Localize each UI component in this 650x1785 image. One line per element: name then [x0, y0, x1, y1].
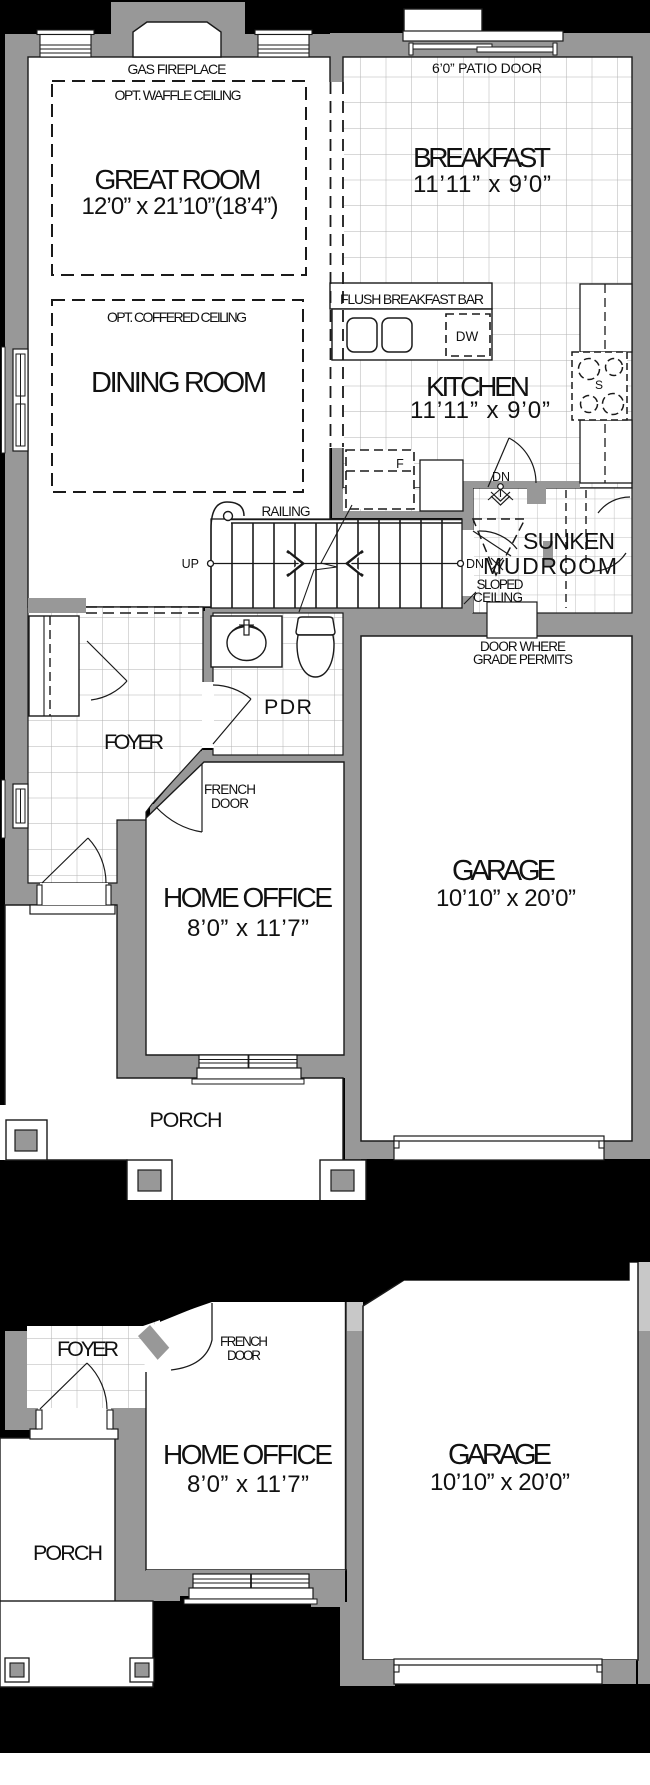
svg-text:GRADE PERMITS: GRADE PERMITS: [473, 652, 573, 667]
svg-text:HOME OFFICE: HOME OFFICE: [163, 882, 333, 913]
svg-text:F: F: [396, 457, 404, 471]
svg-text:11’11” x 9’0”: 11’11” x 9’0”: [410, 397, 550, 424]
svg-text:11’11” x 9’0”: 11’11” x 9’0”: [413, 171, 551, 198]
svg-text:PORCH: PORCH: [33, 1541, 103, 1565]
svg-text:GREAT ROOM: GREAT ROOM: [95, 164, 262, 195]
svg-text:12’0” x 21’10”(18’4”): 12’0” x 21’10”(18’4”): [82, 193, 279, 220]
svg-text:S: S: [595, 378, 603, 392]
svg-text:FOYER: FOYER: [104, 730, 164, 754]
svg-text:8’0” x 11’7”: 8’0” x 11’7”: [187, 915, 309, 942]
svg-text:SUNKEN: SUNKEN: [523, 528, 615, 554]
svg-text:BREAKFAST: BREAKFAST: [413, 142, 551, 173]
svg-text:PORCH: PORCH: [150, 1108, 223, 1132]
svg-text:DINING ROOM: DINING ROOM: [91, 367, 267, 399]
svg-text:6’0” PATIO DOOR: 6’0” PATIO DOOR: [432, 60, 542, 76]
svg-text:DN: DN: [466, 557, 484, 571]
svg-text:CEILING: CEILING: [473, 590, 523, 605]
svg-text:DOOR: DOOR: [227, 1348, 261, 1363]
svg-text:HOME OFFICE: HOME OFFICE: [163, 1439, 333, 1470]
svg-text:GARAGE: GARAGE: [448, 1439, 552, 1471]
svg-text:10’10” x 20’0”: 10’10” x 20’0”: [436, 885, 576, 912]
svg-text:OPT. COFFERED CEILING: OPT. COFFERED CEILING: [107, 309, 247, 325]
svg-text:RAILING: RAILING: [262, 504, 311, 519]
svg-text:GAS FIREPLACE: GAS FIREPLACE: [128, 61, 227, 77]
svg-text:OPT. WAFFLE CEILING: OPT. WAFFLE CEILING: [115, 87, 242, 103]
svg-text:MUDROOM: MUDROOM: [483, 553, 617, 579]
svg-text:FLUSH BREAKFAST BAR: FLUSH BREAKFAST BAR: [340, 291, 484, 307]
svg-text:DOOR: DOOR: [211, 796, 249, 811]
svg-text:10’10” x 20’0”: 10’10” x 20’0”: [430, 1469, 570, 1496]
svg-text:GARAGE: GARAGE: [452, 855, 556, 887]
svg-text:8’0” x 11’7”: 8’0” x 11’7”: [187, 1471, 309, 1498]
svg-text:DN: DN: [492, 470, 510, 484]
svg-text:UP: UP: [182, 557, 199, 571]
svg-text:FRENCH: FRENCH: [204, 782, 256, 797]
svg-text:DW: DW: [456, 329, 479, 344]
svg-text:PDR: PDR: [264, 695, 312, 719]
svg-text:FOYER: FOYER: [57, 1337, 119, 1361]
svg-text:FRENCH: FRENCH: [220, 1334, 268, 1349]
